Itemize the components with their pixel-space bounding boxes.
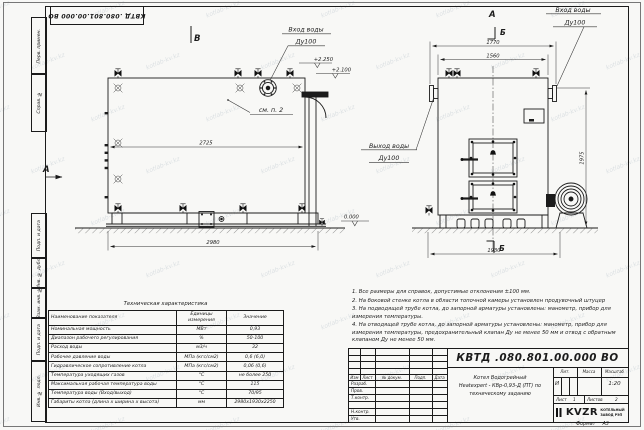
tech-table: Наименование показателя Единицы измерени… xyxy=(48,310,284,408)
side-view xyxy=(105,69,328,227)
leader-lines xyxy=(46,14,602,253)
logo-text: KVZR xyxy=(566,407,598,418)
format-value: А3 xyxy=(602,422,608,427)
table-row: Гидравлическое сопротивление котлаМПа (к… xyxy=(49,362,284,371)
param-value: не более 250 xyxy=(227,371,284,380)
chimney xyxy=(302,92,328,226)
elevation-2100: +2.100 xyxy=(332,67,352,73)
center-mark xyxy=(114,175,123,184)
company-name-line: КОТЕЛЬНЫЙ xyxy=(600,408,624,412)
top-valve xyxy=(533,69,539,79)
param-units: МВт xyxy=(177,325,227,334)
tech-col-value: Значение xyxy=(227,311,284,326)
param-name: Температура воды (Вход/выход) xyxy=(49,389,177,398)
section-b-top-label: Б xyxy=(500,28,506,37)
upper-furnace-door xyxy=(461,139,518,177)
description-line: Heatexpert - КВр-0,93-Д (ПТ) по xyxy=(459,383,541,391)
logo-bars-icon xyxy=(556,408,563,417)
dim-2725: 2725 xyxy=(199,141,213,147)
table-row: Температура уходящих газов°Сне более 250 xyxy=(49,371,284,380)
company-name: КОТЕЛЬНЫЙ ЗАВОД РЭП xyxy=(600,408,624,416)
table-row: Номинальная мощностьМВт0,93 xyxy=(49,325,284,334)
param-value: 115 xyxy=(227,380,284,389)
sheet-label: Лист xyxy=(556,397,567,402)
row-prov: Пров. xyxy=(351,388,363,393)
param-value: 0,6 (6,0) xyxy=(227,353,284,362)
ground-line-right xyxy=(412,228,598,233)
tech-col-name: Наименование показателя xyxy=(49,311,177,326)
door-latch-icon xyxy=(490,150,496,154)
dimension-lines xyxy=(108,42,590,259)
chimney-drain-valve xyxy=(319,219,324,227)
front-view xyxy=(426,66,587,254)
drain-valve xyxy=(115,204,121,214)
product-description: Котел Водогрейный Heatexpert - КВр-0,93-… xyxy=(447,367,553,407)
tech-characteristics: Техническая характеристика Наименование … xyxy=(48,301,283,408)
param-units: мм xyxy=(177,399,227,408)
param-units: МПа (кгс/см2) xyxy=(177,353,227,362)
row-nkontr: Н.контр. xyxy=(351,409,370,414)
top-valve xyxy=(446,69,452,79)
param-units: % xyxy=(177,334,227,343)
dim-1560: 1560 xyxy=(486,53,500,59)
row-razrab: Разраб. xyxy=(351,381,367,386)
top-valve xyxy=(255,69,261,79)
param-value: 70/95 xyxy=(227,389,284,398)
drain-valve xyxy=(426,206,432,216)
table-row: Рабочее давление водыМПа (кгс/см2)0,6 (6… xyxy=(49,353,284,362)
elevation-2250: +2.250 xyxy=(314,57,334,63)
drain-valve xyxy=(240,204,246,214)
see-note-ref: см. п. 2 xyxy=(259,107,283,114)
dim-1770: 1770 xyxy=(486,40,500,46)
row-utv: Утв. xyxy=(351,416,360,421)
top-valve xyxy=(235,69,241,79)
tech-col-units: Единицы измерения xyxy=(177,311,227,326)
view-b-label: В xyxy=(194,34,200,44)
col-podp: Подп. xyxy=(409,375,432,380)
base-frame-front xyxy=(440,215,548,228)
inlet-label-front-1: Вход воды xyxy=(555,7,590,14)
doc-number: КВТД .080.801.00.000 ВО xyxy=(447,349,628,367)
ground-line-left xyxy=(75,228,345,233)
door-latch-icon xyxy=(490,191,496,195)
param-name: Температура уходящих газов xyxy=(49,371,177,380)
col-dokum: № докум. xyxy=(375,375,409,380)
inlet-label-side-1: Вход воды xyxy=(288,27,323,34)
dim-1975: 1975 xyxy=(580,151,586,165)
top-valve xyxy=(287,69,293,79)
sheets-value: 2 xyxy=(615,397,618,402)
section-a-arrow-label: А xyxy=(42,165,50,175)
company-name-line: ЗАВОД РЭП xyxy=(600,413,624,417)
mass-header: Масса xyxy=(577,369,601,374)
lit-value: И xyxy=(553,381,561,387)
sheets-label: Листов xyxy=(587,397,603,402)
format-note: Формат А3 xyxy=(576,422,636,427)
param-name: Гидравлическое сопротивление котла xyxy=(49,362,177,371)
drain-valve xyxy=(299,204,305,214)
param-units: МПа (кгс/см2) xyxy=(177,362,227,371)
lower-furnace-door xyxy=(461,181,518,213)
scale-value: 1:20 xyxy=(601,381,628,387)
param-units: °С xyxy=(177,389,227,398)
dim-1930: 1930 xyxy=(487,248,501,254)
top-valve xyxy=(115,69,121,79)
inlet-flange-right xyxy=(548,86,557,102)
view-a-label: А xyxy=(488,10,496,20)
sheet-value: 1 xyxy=(573,397,576,402)
col-izm: Изм xyxy=(349,375,360,380)
center-mark xyxy=(114,84,123,93)
lit-header: Лит. xyxy=(553,369,577,374)
table-row: Температура воды (Вход/выход)°С70/95 xyxy=(49,389,284,398)
base-frame-side xyxy=(106,212,326,228)
param-units: °С xyxy=(177,380,227,389)
center-mark xyxy=(293,84,302,93)
col-list: Лист xyxy=(360,375,375,380)
inlet-label-front-2: Ду100 xyxy=(564,20,586,27)
note-1: 1. Все размеры для справок, допустимые о… xyxy=(352,289,624,297)
inlet-label-side-2: Ду100 xyxy=(295,39,317,46)
table-row: Габариты котла (длина х ширина х высота)… xyxy=(49,399,284,408)
blower-fan xyxy=(546,183,587,228)
param-value: 0,06 (0,6) xyxy=(227,362,284,371)
description-line: Котел Водогрейный xyxy=(474,375,527,383)
nameplate xyxy=(524,109,544,123)
param-value: 50-100 xyxy=(227,334,284,343)
outlet-label-1: Выход воды xyxy=(369,143,409,150)
scale-header: Масштаб xyxy=(601,369,628,374)
param-units: м3/ч xyxy=(177,343,227,352)
row-tkontr: Т.контр. xyxy=(351,395,369,400)
center-mark xyxy=(114,139,123,148)
note-2: 2. На боковой стенке котла в области топ… xyxy=(352,298,624,306)
top-valve xyxy=(454,69,460,79)
format-label: Формат xyxy=(576,422,595,427)
outlet-label-2: Ду100 xyxy=(378,155,400,162)
col-data: Дата xyxy=(432,375,447,380)
note-3: 3. На подводящей трубе котла, до запорно… xyxy=(352,306,624,321)
param-name: Расход воды xyxy=(49,343,177,352)
table-row: Максимальная рабочая температура воды°С1… xyxy=(49,380,284,389)
param-name: Габариты котла (длина х ширина х высота) xyxy=(49,399,177,408)
company-logo: KVZR КОТЕЛЬНЫЙ ЗАВОД РЭП xyxy=(553,403,628,422)
param-value: 0,93 xyxy=(227,325,284,334)
param-name: Максимальная рабочая температура воды xyxy=(49,380,177,389)
dim-2980: 2980 xyxy=(206,240,220,246)
notes-block: 1. Все размеры для справок, допустимые о… xyxy=(352,289,624,346)
table-row: Диапазон рабочего регулирования%50-100 xyxy=(49,334,284,343)
elevation-0000: 0.000 xyxy=(344,215,360,221)
tech-table-title: Техническая характеристика xyxy=(48,301,283,307)
param-value: 2980х1930х2250 xyxy=(227,399,284,408)
param-units: °С xyxy=(177,371,227,380)
drain-valve xyxy=(180,204,186,214)
param-value: 32 xyxy=(227,343,284,352)
param-name: Диапазон рабочего регулирования xyxy=(49,334,177,343)
center-mark xyxy=(236,84,245,93)
note-4: 4. На отводящей трубе котла, до запорной… xyxy=(352,322,624,345)
outlet-flange-left xyxy=(430,86,439,102)
inlet-flange xyxy=(260,80,277,97)
param-name: Рабочее давление воды xyxy=(49,353,177,362)
title-block: Изм Лист № докум. Подп. Дата Разраб. Про… xyxy=(348,348,629,423)
param-name: Номинальная мощность xyxy=(49,325,177,334)
description-line: техническому заданию xyxy=(469,391,531,399)
table-row: Расход водым3/ч32 xyxy=(49,343,284,352)
